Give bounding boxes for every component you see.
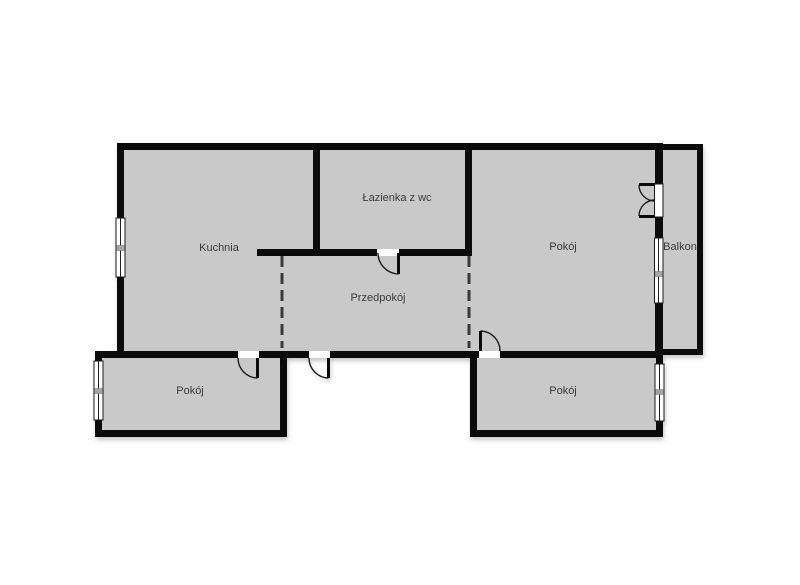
bl-room-wall-bottom [95, 430, 287, 437]
br-room-door-gap [479, 351, 500, 358]
floor-plan: Kuchnia Łazienka z wc Przedpokój Pokój B… [94, 143, 703, 437]
bathroom-wall-south-left [257, 249, 377, 256]
bl-room-wall-right [280, 358, 287, 437]
room-bottom-left-label: Pokój [176, 385, 204, 397]
wall-left-upper [117, 150, 124, 218]
balcony-door-gap [655, 184, 664, 217]
hallway-label: Przedpokój [350, 292, 405, 304]
room-bottom-right-label: Pokój [549, 385, 577, 397]
wall-south-seg2 [259, 351, 309, 358]
balcony-divider-upper [655, 143, 663, 184]
balcony-divider-lower [655, 303, 663, 358]
bathroom-wall-right [465, 150, 472, 256]
bathroom-wall-south-right [399, 249, 470, 256]
br-room-wall-right-upper [656, 358, 663, 364]
wall-south-seg1 [95, 351, 238, 358]
balcony-wall-bottom [663, 349, 703, 355]
balcony-window-icon [655, 238, 664, 303]
entrance-door-gap [309, 351, 330, 358]
bathroom-label: Łazienka z wc [362, 192, 432, 204]
entrance-door-icon [309, 358, 329, 378]
wall-top [117, 143, 663, 150]
kitchen-window-icon [116, 218, 125, 277]
bathroom-wall-left [313, 150, 320, 256]
bl-room-door-gap [238, 351, 259, 358]
wall-south-seg4 [500, 351, 663, 358]
wall-left-lower [117, 277, 124, 351]
br-room-wall-left [470, 358, 477, 437]
room-top-right-label: Pokój [549, 241, 577, 253]
bl-room-window-icon [94, 361, 103, 420]
balcony-label: Balkon [663, 241, 697, 253]
br-room-window-icon [655, 364, 664, 421]
br-room-wall-right-lower [656, 421, 663, 437]
bathroom-door-gap [377, 249, 399, 256]
br-room-wall-bottom [470, 430, 663, 437]
balcony-divider-middle [655, 217, 663, 238]
kitchen-label: Kuchnia [199, 242, 240, 254]
wall-south-seg3 [330, 351, 479, 358]
floor-plan-svg: Kuchnia Łazienka z wc Przedpokój Pokój B… [0, 0, 800, 585]
floor-plan-canvas: Kuchnia Łazienka z wc Przedpokój Pokój B… [0, 0, 800, 585]
balcony-wall-right [697, 144, 703, 355]
